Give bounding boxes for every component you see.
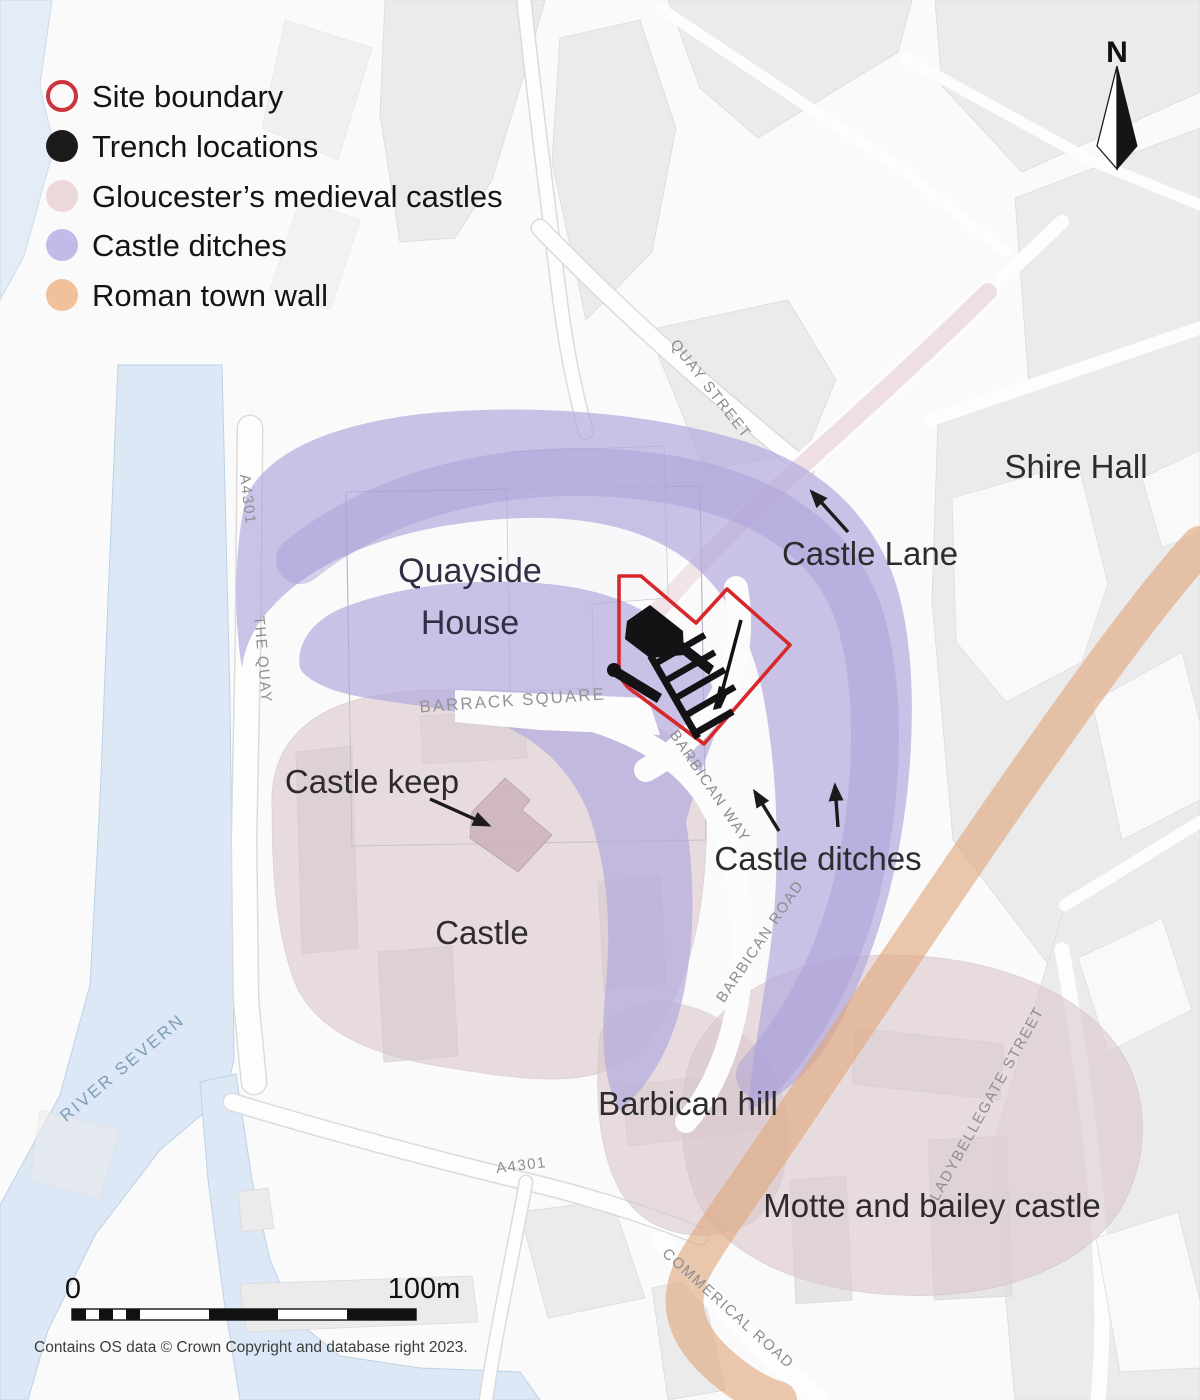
label-barbican-hill: Barbican hill (598, 1085, 778, 1122)
map-canvas: QUAY STREET A4301 THE QUAY RIVER SEVERN … (0, 0, 1200, 1400)
medieval-castles-swatch (46, 180, 78, 212)
label-castle-ditches: Castle ditches (714, 840, 921, 877)
castle-ditches-swatch (46, 229, 78, 261)
legend-label: Castle ditches (92, 228, 287, 263)
label-quayside-house-line1: Quayside (398, 552, 542, 590)
legend-item-medieval-castles: Gloucester’s medieval castles (46, 179, 503, 214)
archaeology-site-map: QUAY STREET A4301 THE QUAY RIVER SEVERN … (0, 0, 1200, 1400)
legend-label: Site boundary (92, 79, 284, 114)
roman-town-wall-swatch (46, 279, 78, 311)
label-quayside-house-line2: House (421, 604, 519, 642)
scale-end-label: 100m (388, 1273, 461, 1305)
motte-bailey-area (682, 955, 1142, 1296)
label-castle: Castle (435, 914, 529, 951)
label-shire-hall: Shire Hall (1004, 448, 1147, 485)
label-motte-bailey-castle: Motte and bailey castle (763, 1187, 1101, 1224)
legend-label: Trench locations (92, 129, 318, 164)
trench-locations-swatch (46, 130, 78, 162)
scale-start-label: 0 (65, 1273, 81, 1305)
label-castle-keep: Castle keep (285, 763, 459, 800)
legend-label: Gloucester’s medieval castles (92, 179, 503, 214)
north-label: N (1106, 36, 1128, 69)
legend-label: Roman town wall (92, 278, 328, 313)
label-castle-lane: Castle Lane (782, 535, 958, 572)
attribution-text: Contains OS data © Crown Copyright and d… (34, 1339, 468, 1356)
